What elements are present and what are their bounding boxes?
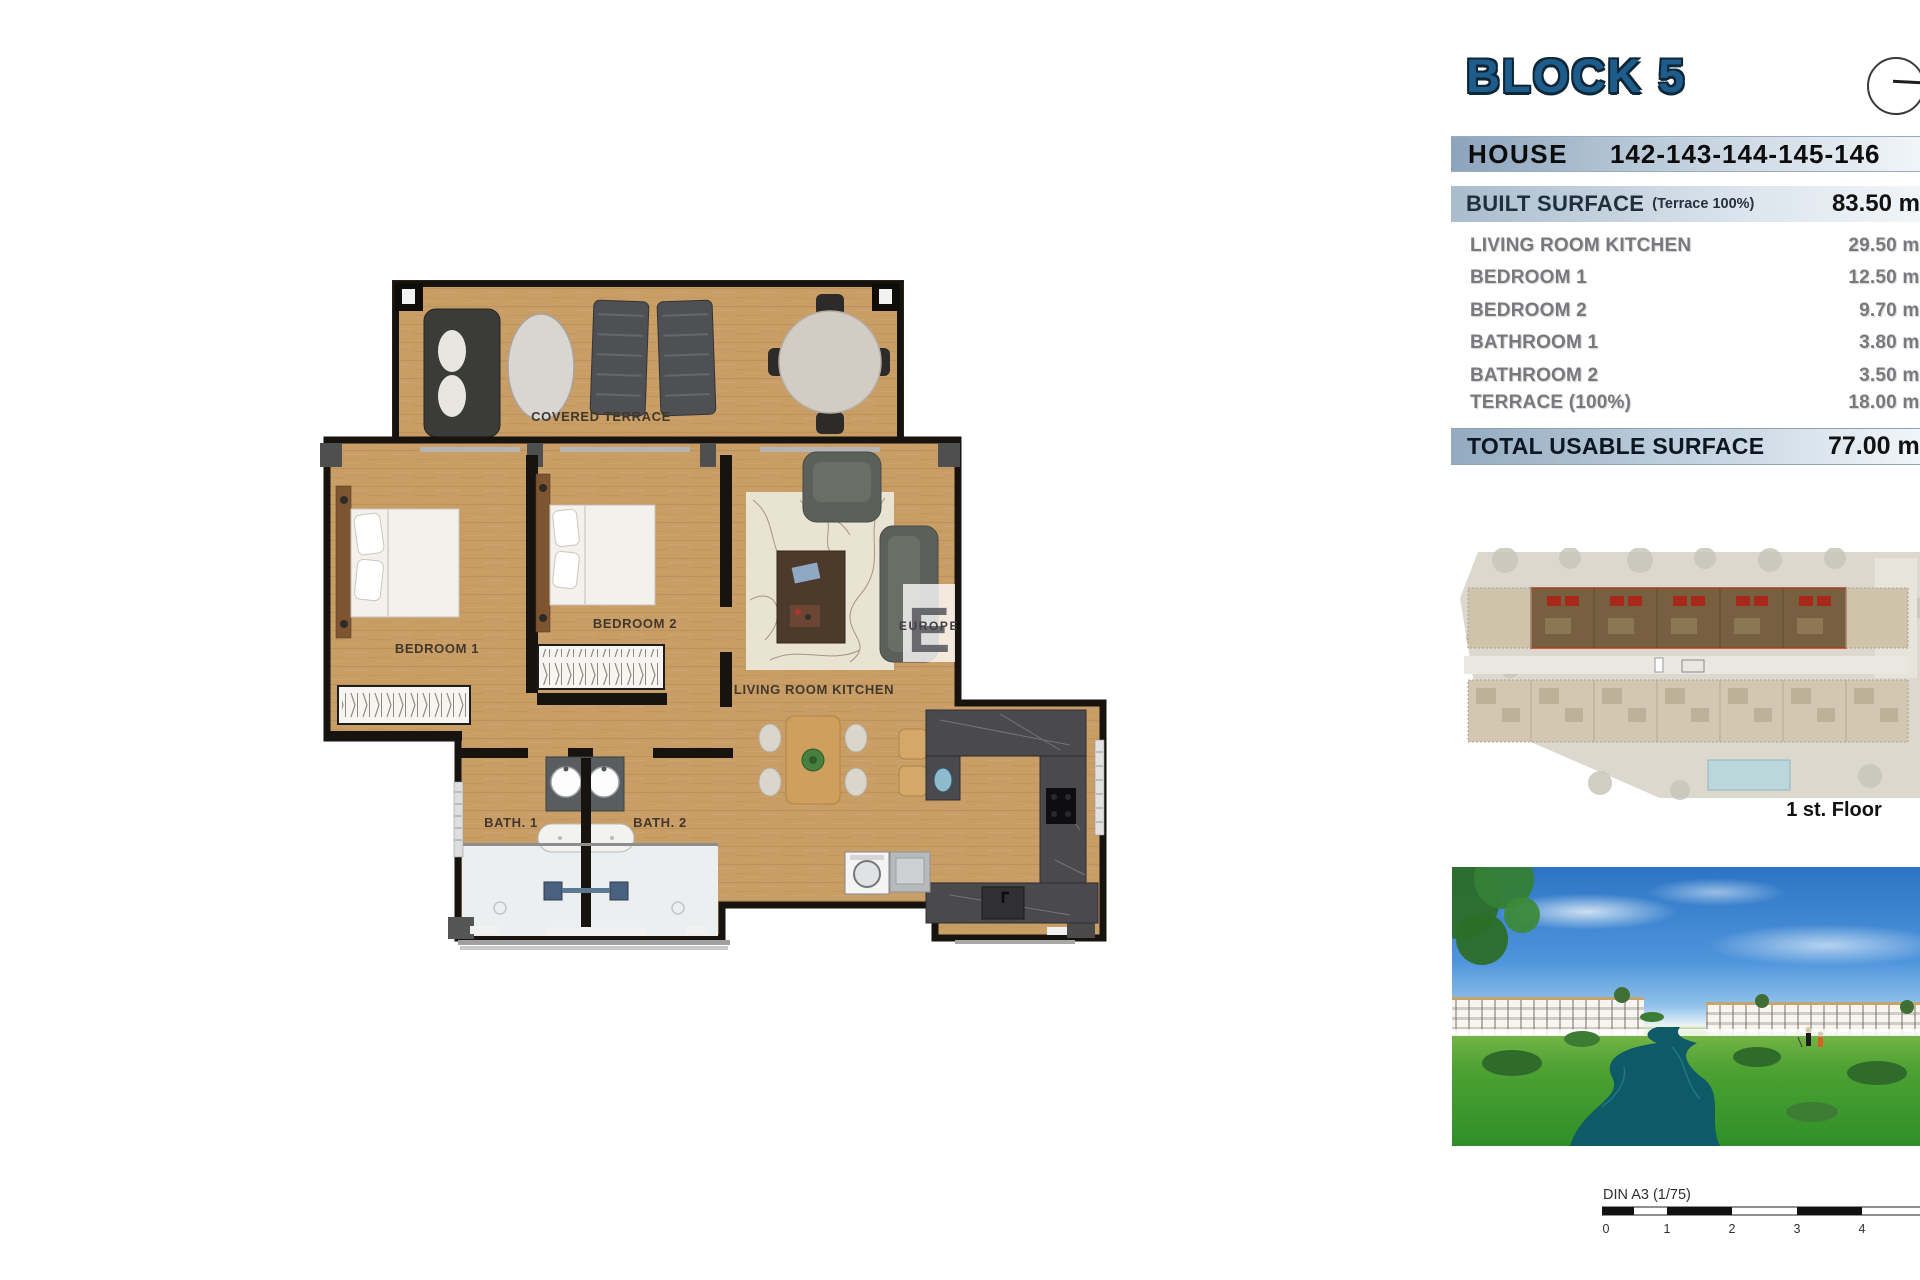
floor-plan: COVERED TERRACE (300, 255, 1150, 990)
row-value: 9.70 m² (1859, 300, 1920, 322)
built-surface-value: 83.50 m² (1832, 190, 1920, 218)
scale-bar-label: DIN A3 (1/75) (1603, 1187, 1691, 1203)
surface-row: LIVING ROOM KITCHEN 29.50 m² (1470, 235, 1920, 257)
golf-resort-photo (1452, 867, 1920, 1146)
bedroom1-furniture (336, 486, 470, 724)
surface-row: BATHROOM 1 3.80 m² (1470, 332, 1920, 354)
bath-window (454, 782, 463, 857)
photo-overlay (1452, 867, 1920, 1146)
built-surface-label: BUILT SURFACE (1451, 191, 1644, 217)
cooktop (1046, 788, 1076, 824)
label-covered-terrace: COVERED TERRACE (531, 409, 671, 424)
site-plan-caption: 1 st. Floor (1786, 799, 1882, 821)
pool (1708, 760, 1790, 790)
watermark-word: EUROPE (899, 619, 959, 633)
total-surface-bar: TOTAL USABLE SURFACE 77.00 m² (1451, 428, 1920, 465)
label-bath1: BATH. 1 (484, 815, 538, 830)
row-value: 12.50 m² (1848, 267, 1920, 289)
building-row-top (1468, 588, 1908, 648)
site-plan: 1 st. Floor (1450, 548, 1920, 833)
golfers (1798, 1027, 1823, 1047)
scale-tick: 2 (1729, 1222, 1736, 1236)
scale-tick: 4 (1859, 1222, 1866, 1236)
armchair (803, 452, 881, 522)
building-row-bottom (1468, 680, 1908, 742)
scale-tick: 3 (1794, 1222, 1801, 1236)
scale-bar: DIN A3 (1/75) 0 1 2 3 4 (1602, 1186, 1920, 1242)
surface-row: BATHROOM 2 3.50 m² (1470, 365, 1920, 387)
plan-sheet: { "header": { "block_title": "BLOCK 5", … (0, 0, 1920, 1280)
sun-lounger (590, 300, 649, 416)
coffee-table (777, 551, 845, 643)
bedroom2-furniture (536, 474, 664, 689)
terrace-table (508, 314, 574, 420)
europe-watermark: E EUROPE (899, 584, 959, 666)
label-living: LIVING ROOM KITCHEN (734, 682, 894, 697)
label-bath2: BATH. 2 (633, 815, 687, 830)
row-value: 3.50 m² (1859, 365, 1920, 387)
kitchen-window (1095, 740, 1104, 835)
scale-tick: 0 (1603, 1222, 1610, 1236)
total-surface-value: 77.00 m² (1828, 432, 1920, 461)
terrace-sofa (424, 309, 500, 437)
sun-lounger (657, 300, 716, 416)
row-label: BEDROOM 1 (1470, 267, 1587, 289)
house-label: HOUSE (1451, 139, 1568, 170)
surface-row: BEDROOM 2 9.70 m² (1470, 300, 1920, 322)
house-numbers: 142-143-144-145-146 (1610, 139, 1881, 170)
row-label: BEDROOM 2 (1470, 300, 1587, 322)
built-surface-bar: BUILT SURFACE (Terrace 100%) 83.50 m² (1451, 186, 1920, 222)
row-label: LIVING ROOM KITCHEN (1470, 235, 1691, 257)
kitchen-sink (934, 768, 952, 792)
built-surface-note: (Terrace 100%) (1652, 196, 1754, 212)
row-label: BATHROOM 2 (1470, 365, 1598, 387)
row-label: BATHROOM 1 (1470, 332, 1598, 354)
row-label: TERRACE (100%) (1470, 392, 1631, 414)
wardrobe (338, 686, 470, 724)
apartment-body: BEDROOM 1 BEDROOM 2 (320, 440, 1104, 950)
washing-machine (845, 852, 889, 894)
row-value: 3.80 m² (1859, 332, 1920, 354)
total-surface-label: TOTAL USABLE SURFACE (1451, 433, 1764, 460)
row-value: 18.00 m² (1848, 392, 1920, 414)
house-bar: HOUSE 142-143-144-145-146 (1451, 136, 1920, 172)
label-bedroom2: BEDROOM 2 (593, 616, 677, 631)
row-value: 29.50 m² (1848, 235, 1920, 257)
surface-row: TERRACE (100%) 18.00 m² (1470, 392, 1920, 414)
palm-trees (1614, 987, 1914, 1014)
north-compass-icon (1867, 57, 1920, 115)
label-bedroom1: BEDROOM 1 (395, 641, 479, 656)
wardrobe (538, 645, 664, 689)
covered-terrace-room: COVERED TERRACE (393, 281, 903, 455)
scale-tick: 1 (1664, 1222, 1671, 1236)
corner-tree (1452, 867, 1540, 965)
surface-row: BEDROOM 1 12.50 m² (1470, 267, 1920, 289)
block-title: BLOCK 5 (1466, 48, 1686, 103)
